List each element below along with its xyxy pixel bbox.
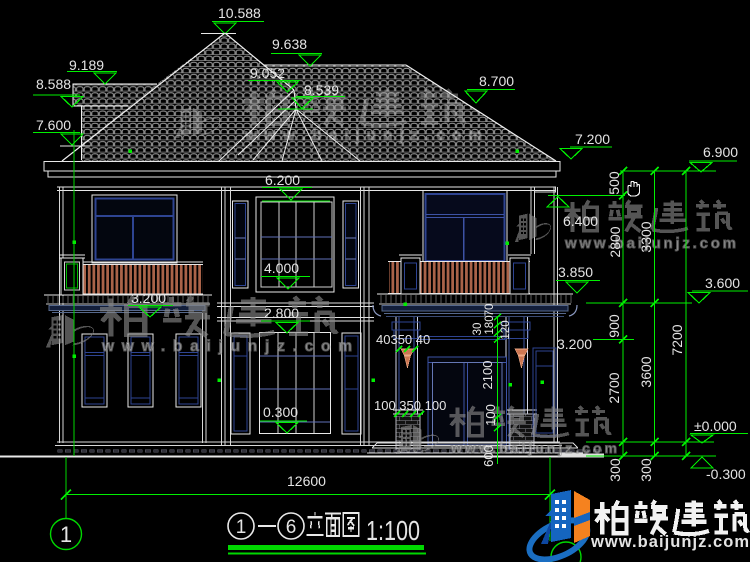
svg-text:2.800: 2.800 bbox=[264, 305, 299, 321]
svg-text:www.baijunjz.com: www.baijunjz.com bbox=[590, 533, 749, 551]
svg-text:6.200: 6.200 bbox=[265, 172, 300, 188]
svg-text:10.588: 10.588 bbox=[218, 5, 261, 21]
svg-text:40350 40: 40350 40 bbox=[376, 332, 430, 347]
svg-text:7.200: 7.200 bbox=[575, 131, 610, 147]
svg-text:300: 300 bbox=[638, 458, 654, 482]
svg-text:2700: 2700 bbox=[606, 372, 622, 403]
svg-text:9.189: 9.189 bbox=[69, 57, 104, 73]
svg-text:30: 30 bbox=[472, 323, 484, 336]
svg-text:9.052: 9.052 bbox=[250, 65, 285, 81]
svg-text:0.300: 0.300 bbox=[263, 404, 298, 420]
svg-text:6: 6 bbox=[286, 517, 297, 538]
svg-text:4.000: 4.000 bbox=[264, 260, 299, 276]
svg-text:180: 180 bbox=[484, 315, 496, 334]
svg-text:3600: 3600 bbox=[638, 356, 654, 387]
svg-text:1:100: 1:100 bbox=[366, 515, 420, 546]
svg-text:6.400: 6.400 bbox=[563, 213, 598, 229]
svg-text:3300: 3300 bbox=[638, 221, 654, 252]
svg-text:7.600: 7.600 bbox=[36, 117, 71, 133]
svg-text:12600: 12600 bbox=[287, 473, 326, 489]
svg-text:600: 600 bbox=[481, 445, 496, 467]
svg-text:6.900: 6.900 bbox=[703, 144, 738, 160]
svg-text:500: 500 bbox=[606, 171, 622, 195]
svg-text:9.638: 9.638 bbox=[272, 36, 307, 52]
svg-text:3.200: 3.200 bbox=[131, 290, 166, 306]
svg-text:7200: 7200 bbox=[669, 324, 685, 355]
svg-text:8.539: 8.539 bbox=[304, 82, 339, 98]
svg-text:100: 100 bbox=[483, 404, 498, 426]
svg-text:300: 300 bbox=[607, 458, 623, 482]
svg-text:3.200: 3.200 bbox=[557, 336, 592, 352]
svg-text:8.588: 8.588 bbox=[36, 76, 71, 92]
svg-text:1: 1 bbox=[236, 517, 247, 538]
svg-text:100 350 100: 100 350 100 bbox=[374, 398, 446, 413]
svg-text:2100: 2100 bbox=[480, 361, 495, 390]
svg-text:3.600: 3.600 bbox=[705, 275, 740, 291]
svg-text:70: 70 bbox=[484, 304, 496, 317]
svg-text:±0.000: ±0.000 bbox=[694, 418, 737, 434]
svg-text:900: 900 bbox=[606, 314, 622, 338]
svg-text:8.700: 8.700 bbox=[479, 73, 514, 89]
svg-text:120: 120 bbox=[500, 320, 512, 339]
svg-text:2800: 2800 bbox=[607, 226, 623, 257]
svg-text:1: 1 bbox=[60, 522, 72, 547]
svg-text:3.850: 3.850 bbox=[558, 264, 593, 280]
